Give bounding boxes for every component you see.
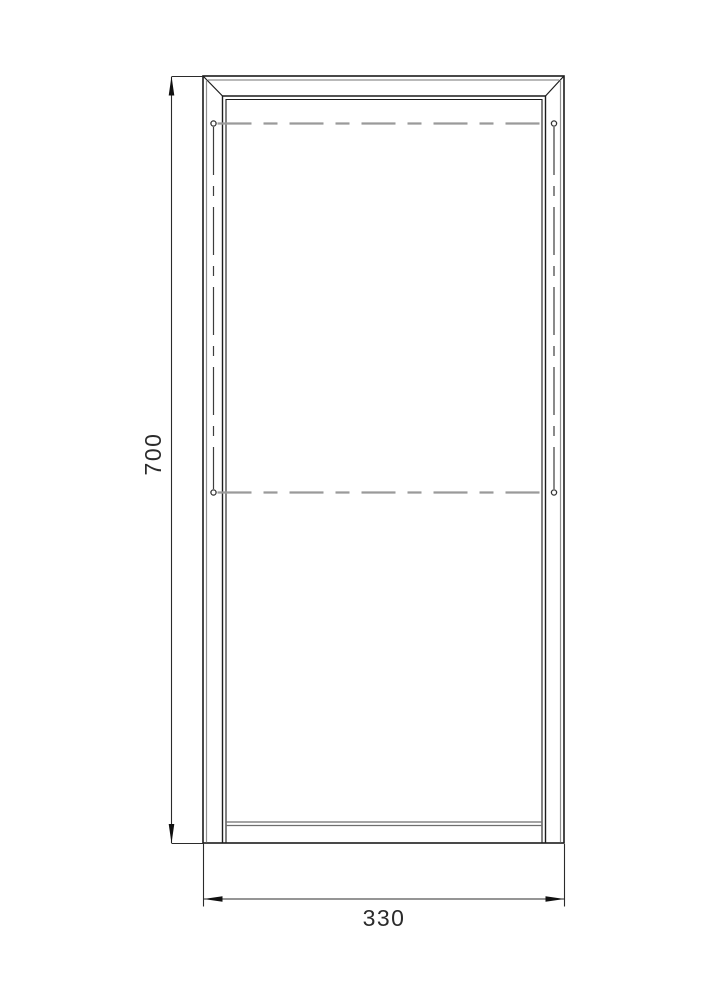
hinge-centerlines	[211, 121, 557, 495]
height-arrow-down	[169, 824, 175, 844]
frame-offset-lines	[207, 80, 561, 843]
hinge-circle-bottom-left	[211, 490, 216, 495]
frame-offset-edge-line	[207, 80, 561, 843]
height-dimension-label: 700	[140, 433, 166, 476]
drawing-sheet: 700 330	[0, 0, 711, 1000]
frame-outline	[203, 76, 564, 843]
width-arrow-left	[204, 896, 223, 902]
hinge-circle-bottom-right	[551, 490, 556, 495]
height-arrow-up	[169, 76, 175, 96]
width-dimension	[204, 844, 565, 907]
hinge-circle-top-right	[551, 121, 556, 126]
frame-inner-profile-inner-line	[226, 100, 542, 844]
frame-inner-profile-outer-line	[223, 96, 546, 843]
hinge-circle-top-left	[211, 121, 216, 126]
width-dimension-label: 330	[363, 905, 406, 931]
width-arrow-right	[546, 896, 565, 902]
frame-outer-rectangle	[203, 76, 564, 843]
technical-drawing: 700 330	[0, 0, 711, 1000]
height-dimension	[169, 76, 204, 844]
bottom-rail-lines	[226, 822, 542, 826]
